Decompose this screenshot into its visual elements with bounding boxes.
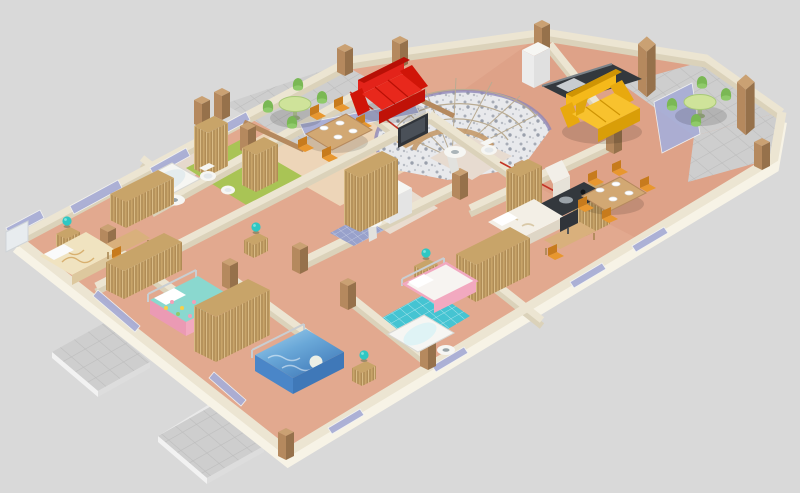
plate [609, 197, 617, 201]
plate [336, 121, 344, 125]
terrace-pillar [737, 74, 755, 135]
plate [596, 188, 604, 192]
floor-plan-render: 3d-isometric-floor-plan [0, 0, 800, 493]
wood-pillar [754, 138, 770, 170]
teal-lamp [421, 248, 430, 260]
wood-pillar [278, 428, 294, 460]
round-table [279, 97, 311, 112]
plate [334, 135, 342, 139]
wood-pillar [292, 242, 308, 274]
floor-plan-svg: 3d-isometric-floor-plan [0, 0, 800, 493]
wood-pillar [214, 88, 230, 120]
wood-pillar [340, 278, 356, 310]
teal-lamp [251, 222, 260, 234]
round-table [684, 95, 716, 110]
plate [625, 191, 633, 195]
plate [349, 129, 357, 133]
wood-pillar [452, 168, 468, 200]
plate [612, 182, 620, 186]
wood-pillar [337, 44, 353, 76]
teal-lamp [62, 216, 71, 228]
kitchen-sink [559, 197, 573, 204]
terrace-pillar [638, 36, 656, 97]
plate [320, 126, 328, 130]
teal-lamp [359, 350, 368, 362]
fridge [522, 42, 550, 88]
